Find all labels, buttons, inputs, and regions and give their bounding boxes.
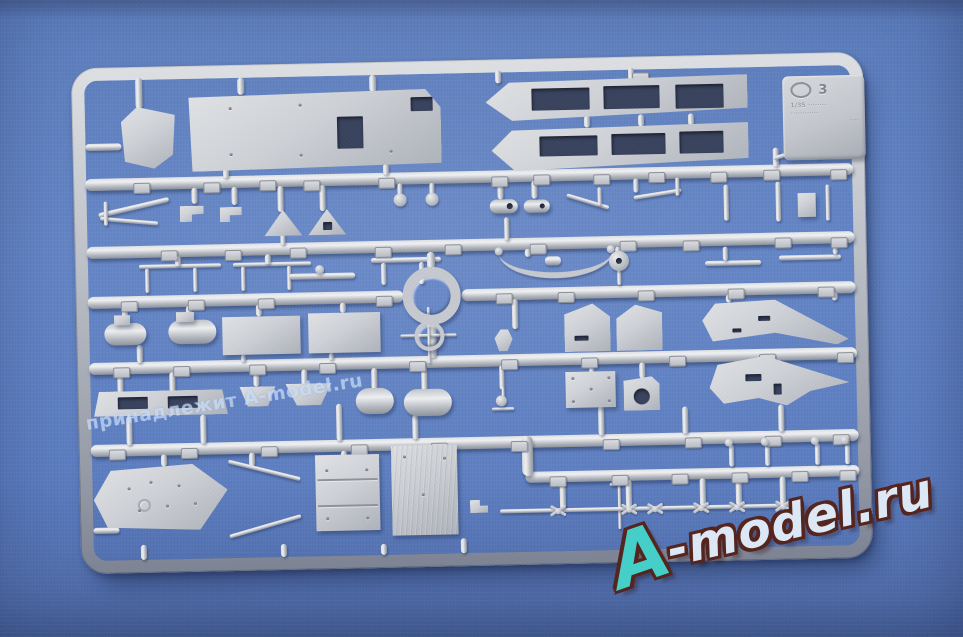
glacis-plate (93, 463, 228, 532)
photo-of-model-kit-sprue: 3 1/35 ········ ············ ···· принад… (0, 0, 963, 637)
sprue-stem (369, 75, 376, 92)
angle-bracket-2 (220, 207, 242, 222)
part-opening (745, 374, 761, 381)
part-number-tag (558, 292, 575, 303)
sprue-stem (336, 404, 343, 441)
part-number-tag (638, 290, 655, 301)
part-hole (634, 388, 650, 404)
part-number-tag (203, 182, 220, 193)
part-number-tag (549, 476, 566, 487)
sprue-stem (241, 355, 246, 362)
rivet-detail (166, 504, 169, 507)
part-number-tag (671, 474, 688, 485)
angled-plate-2 (616, 304, 663, 351)
part-opening (611, 133, 665, 155)
periscope-2 (425, 193, 438, 206)
part-number-tag (533, 174, 550, 185)
sprue-letter: 3 (818, 82, 827, 97)
sprue-stem (289, 272, 355, 279)
sprue-stem (277, 186, 284, 212)
rivet-detail (178, 484, 181, 487)
sprue-stem (265, 254, 271, 264)
sprue-stem (634, 188, 682, 200)
part-number-tag (225, 250, 242, 261)
sprue-runner (461, 281, 855, 301)
small-angle (470, 500, 488, 513)
part-number-tag (258, 298, 275, 309)
sprue-stem (104, 202, 109, 226)
part-number-tag (774, 237, 791, 248)
part-number-tag (830, 237, 847, 248)
sprue-stem (329, 353, 334, 360)
pump-2-box (176, 312, 194, 322)
part-number-tag (173, 366, 190, 377)
angled-plate-1 (564, 303, 611, 352)
hatch-door-1 (315, 454, 381, 531)
sprue-info-plate: 3 1/35 ········ ············ ···· (782, 75, 866, 161)
hull-side-right (709, 354, 850, 407)
sprue-stem (723, 247, 728, 261)
part-number-tag (830, 169, 847, 180)
sprue-stem (597, 187, 601, 205)
part-number-tag (685, 437, 702, 448)
sprue-stem (193, 268, 198, 292)
rivet-detail (590, 387, 593, 390)
panel-blank-2 (308, 312, 381, 353)
bracket-hole (623, 376, 660, 411)
small-figure (494, 329, 512, 351)
rivet-detail (366, 516, 369, 519)
sprue-stem (191, 188, 197, 204)
sprue-stem (495, 70, 501, 83)
sprue-stem (241, 267, 246, 291)
part-number-tag (501, 359, 518, 370)
rivet-detail (300, 154, 303, 157)
turret-ring (402, 266, 461, 325)
rivet-detail (325, 469, 328, 472)
pontoon-side-bottom (491, 120, 749, 171)
pump-1-box (114, 315, 130, 325)
sprue-stem (100, 217, 158, 226)
rivet-detail (607, 376, 610, 379)
sprue-stem (229, 514, 301, 538)
part-opening (410, 97, 432, 111)
sprue-stem (412, 415, 419, 439)
sprue-stem (228, 460, 301, 482)
part-number-tag (620, 241, 637, 252)
pump-1 (104, 323, 146, 346)
fuel-tank-1 (356, 388, 395, 415)
rivet-detail (571, 377, 574, 380)
sprue-stem (638, 114, 644, 126)
rivet-detail (365, 468, 368, 471)
sprue-stem (340, 303, 346, 313)
hex-plate (121, 106, 176, 169)
part-number-tag (669, 356, 686, 367)
rivet-detail (194, 502, 197, 505)
deck-plate (188, 89, 442, 172)
part-number-tag (837, 352, 854, 363)
pump-2 (168, 319, 216, 344)
part-number-tag (261, 446, 278, 457)
part-number-tag (603, 439, 620, 450)
part-number-tag (818, 286, 835, 297)
mount-box (565, 371, 616, 408)
rivet-detail (608, 399, 611, 402)
part-number-tag (375, 247, 392, 258)
part-number-tag (496, 293, 513, 304)
rivet-detail (422, 493, 425, 496)
sprue-stem (705, 260, 761, 266)
panel-groove (318, 504, 378, 507)
part-number-tag (611, 475, 628, 486)
rivet-detail (149, 481, 152, 484)
part-number-tag (683, 240, 700, 251)
part-number-tag (161, 250, 178, 261)
part-number-tag (121, 301, 138, 312)
part-opening (675, 84, 723, 109)
part-number-tag (445, 244, 462, 255)
sprue-stem (779, 254, 841, 260)
part-number-tag (648, 172, 665, 183)
part-hole (507, 203, 513, 209)
sprue-stem (639, 362, 645, 378)
part-opening (323, 222, 332, 230)
sprue-stem (584, 115, 590, 127)
sprue-stem (461, 538, 467, 553)
part-number-tag (763, 170, 780, 181)
eyelet-1 (490, 199, 518, 214)
sprue-stem (825, 184, 830, 220)
panel-groove (317, 478, 377, 481)
part-number-tag (728, 288, 745, 299)
sprue-stem (145, 269, 150, 293)
sprue-stem (675, 178, 679, 196)
sprue-stem (729, 445, 734, 467)
info-plate-line-3: ···· (791, 117, 859, 126)
manufacturer-logo-icon (790, 82, 811, 98)
sprue-stem (371, 368, 377, 390)
rivet-detail (443, 457, 446, 460)
sprue-stem (775, 182, 781, 222)
sprue-stem (566, 193, 609, 210)
sprue-stem (778, 404, 785, 431)
rivet-detail (326, 517, 329, 520)
sprue-stem (281, 544, 287, 557)
part-opening (531, 87, 589, 110)
rivet-detail (299, 104, 302, 107)
sprue-stem (512, 299, 519, 329)
sprue-stem (723, 185, 729, 221)
part-number-tag (290, 247, 307, 258)
sprue-stem (93, 527, 119, 534)
rivet-detail (572, 400, 575, 403)
rivet-detail (128, 487, 131, 490)
panel-blank-1 (222, 316, 301, 356)
paddle (609, 251, 629, 271)
sprue-stem (504, 217, 509, 240)
ramp-panel (391, 444, 459, 535)
part-number-tag (109, 449, 126, 460)
sprue-stem (85, 143, 121, 151)
sprue-stem (383, 164, 389, 175)
part-number-tag (409, 361, 426, 372)
rivet-detail (390, 150, 393, 153)
periscope-1 (393, 193, 406, 206)
tow-bar (499, 249, 614, 279)
part-number-tag (376, 296, 393, 307)
sprue-stem (381, 544, 387, 555)
fuel-tank-2 (404, 388, 453, 416)
prop-hub (555, 508, 561, 514)
triangle-plate-1 (264, 210, 303, 237)
sprue-stem (137, 345, 143, 363)
sprue-stem (492, 407, 514, 410)
part-number-tag (581, 357, 598, 368)
part-number-tag (511, 441, 528, 452)
pontoon-side-top (485, 74, 748, 123)
part-number-tag (303, 180, 320, 191)
propeller-1 (549, 502, 567, 520)
sprue-stem (200, 415, 207, 444)
sprue-stem (765, 444, 770, 466)
sprue-stem (98, 197, 169, 218)
part-opening (337, 116, 364, 149)
small-plate-r2 (798, 193, 816, 217)
rivet-detail (229, 107, 232, 110)
sprue-stem (141, 545, 147, 560)
part-opening (679, 131, 723, 154)
valve (496, 395, 507, 406)
part-number-tag (319, 363, 336, 374)
part-number-tag (710, 172, 727, 183)
sprue-stem (682, 406, 689, 433)
sprue-stem (161, 454, 167, 466)
part-opening (758, 316, 770, 321)
part-opening (732, 328, 741, 332)
part-opening (575, 336, 589, 341)
sprue-stem (598, 406, 605, 435)
part-number-tag (593, 174, 610, 185)
part-number-tag (249, 364, 266, 375)
sprue-stem (135, 78, 143, 109)
rivet-detail (230, 153, 233, 156)
sprue-stem (633, 178, 638, 192)
part-number-tag (378, 178, 395, 189)
eyelet-2 (524, 199, 550, 213)
part-opening (539, 135, 597, 156)
hull-side-left (702, 298, 849, 347)
angle-bracket-1 (180, 206, 204, 222)
part-number-tag (259, 180, 276, 191)
part-number-tag (133, 183, 150, 194)
part-number-tag (113, 367, 130, 378)
sprue-stem (381, 263, 386, 285)
part-number-tag (491, 176, 508, 187)
part-opening (603, 85, 659, 109)
part-number-tag (188, 300, 205, 311)
sprue-stem (688, 113, 694, 125)
sprue-stem (617, 269, 621, 285)
part-hole (616, 258, 622, 264)
sprue-stem (233, 261, 311, 267)
rivet-detail (403, 455, 406, 458)
rivet-detail (138, 509, 141, 512)
sprue-runner (87, 231, 855, 259)
part-opening (774, 384, 782, 395)
sprue-stem (231, 187, 237, 205)
triangle-plate-2 (308, 209, 347, 236)
hand-wheel (414, 321, 445, 352)
part-number-tag (181, 448, 198, 459)
part-hole (540, 203, 545, 208)
sprue-stem (237, 78, 244, 95)
